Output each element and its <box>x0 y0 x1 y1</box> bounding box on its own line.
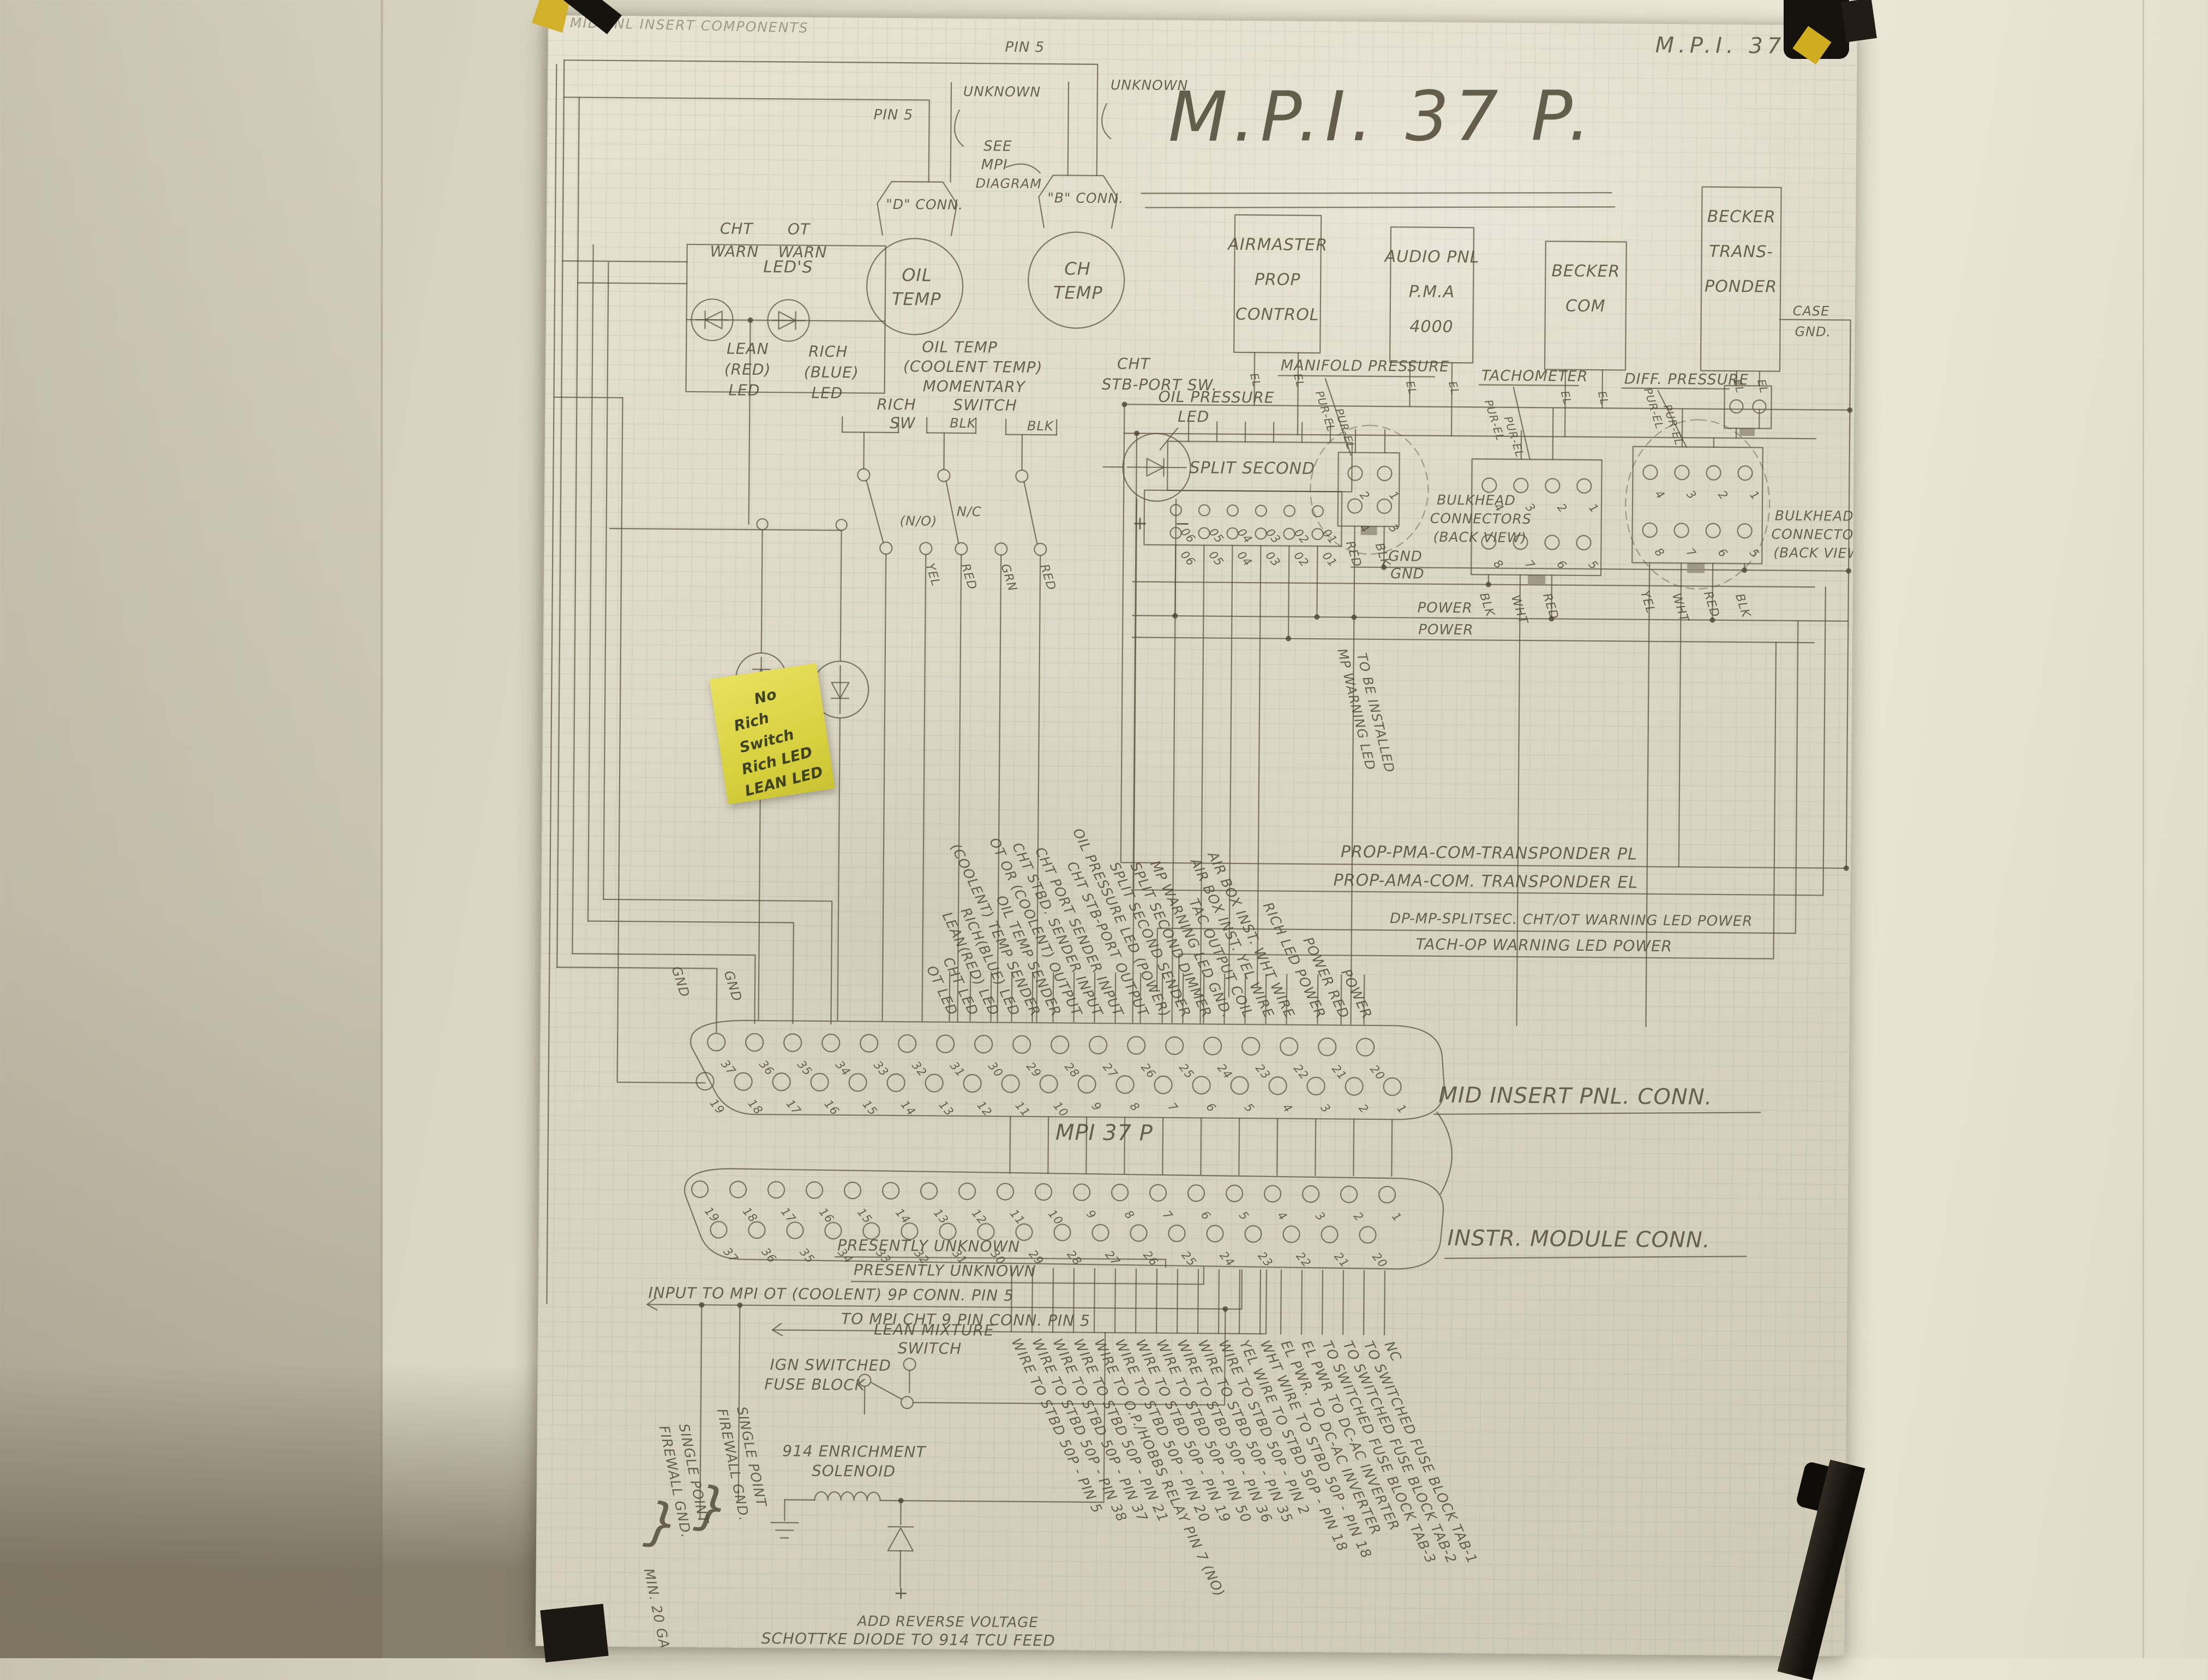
wire <box>554 397 623 398</box>
pin-number: 4 <box>1652 488 1667 502</box>
pin-number: 2 <box>1555 501 1570 515</box>
connector-pin <box>1321 1226 1337 1243</box>
becker-transponder-box-label: BECKER <box>1707 207 1776 227</box>
connector-pin <box>1078 1076 1096 1093</box>
bulkhead-connector-c <box>1632 447 1763 564</box>
connector-pin <box>1643 465 1657 479</box>
wire <box>815 1492 880 1501</box>
wire <box>1141 189 1611 197</box>
handwritten-label: INPUT TO MPI OT (COOLENT) 9P CONN. PIN 5 <box>648 1284 1014 1305</box>
handwritten-label: CHT <box>720 219 754 237</box>
sticky-note: No Rich Switch Rich LED LEAN LED <box>710 663 835 805</box>
connector-pin <box>921 1183 937 1199</box>
wire <box>1048 1117 1048 1173</box>
pin-number: 20 <box>1370 1250 1390 1270</box>
wire <box>1445 1254 1746 1261</box>
wire <box>883 554 886 1021</box>
audio-panel-box-label: AUDIO PNL <box>1384 247 1480 267</box>
connector-pin <box>849 1073 867 1091</box>
pin-number: 5 <box>1586 558 1601 572</box>
handwritten-label: RICH <box>877 395 916 414</box>
connector-pin <box>768 1181 784 1198</box>
connector-pin <box>959 1183 975 1199</box>
diode-lead <box>1127 467 1186 467</box>
connector-pin <box>887 1074 905 1091</box>
contact-circle <box>757 519 768 530</box>
junction-dot <box>1121 401 1127 407</box>
pin-number: 02 <box>1291 549 1311 569</box>
connector-pin <box>1127 1036 1145 1054</box>
easel-leg-left <box>540 1604 608 1663</box>
pin-number: 8 <box>1491 557 1506 572</box>
pin-number: 8 <box>1127 1100 1142 1114</box>
wire <box>1006 435 1057 435</box>
handwritten-label: MANIFOLD PRESSURE <box>1281 357 1449 375</box>
handwritten-label: PROP-PMA-COM-TRANSPONDER PL <box>1341 842 1637 863</box>
pin-number: 35 <box>797 1246 817 1266</box>
audio-panel-box-label: 4000 <box>1409 317 1454 337</box>
wire <box>1288 546 1289 639</box>
pin-number: 22 <box>1291 1062 1311 1082</box>
handwritten-label: OIL TEMP <box>922 338 998 356</box>
wire <box>1257 545 1261 986</box>
connector-pin <box>1280 1038 1298 1055</box>
contact-circle <box>1016 470 1028 482</box>
wire <box>617 398 711 1083</box>
connector-pin <box>1199 505 1210 515</box>
connector-pin <box>697 1072 714 1090</box>
wire <box>1136 1269 1136 1333</box>
pin-number: 26 <box>1138 1060 1159 1081</box>
wire <box>871 1383 902 1399</box>
handwritten-label: BLK <box>1027 418 1054 434</box>
junction-dot <box>1844 866 1849 871</box>
handwritten-label: OIL PRESSURE <box>1158 388 1274 407</box>
connector-pin <box>1341 1186 1357 1202</box>
pin-number: 7 <box>1165 1100 1180 1114</box>
wire <box>1145 203 1615 212</box>
connector-pin <box>1348 466 1362 481</box>
wire <box>944 433 944 470</box>
wire <box>1317 546 1317 617</box>
pin-number: 20 <box>1367 1063 1388 1083</box>
handwritten-label: DIAGRAM <box>975 176 1042 191</box>
junction-dot <box>1742 567 1747 573</box>
diode-symbol <box>888 1528 913 1551</box>
handwritten-label: EL <box>1291 372 1307 389</box>
handwritten-label: N/C <box>957 504 982 519</box>
handwritten-label: SCHOTTKE DIODE TO 914 TCU FEED <box>761 1629 1055 1649</box>
connector-pin <box>748 1222 765 1238</box>
pin-number: 36 <box>759 1245 779 1265</box>
becker-transponder-box-label: PONDER <box>1705 277 1777 297</box>
handwritten-label: MPI <box>981 157 1008 173</box>
junction-dot <box>1846 568 1851 574</box>
pin-number: 21 <box>1329 1062 1349 1082</box>
connector-pin <box>1035 1184 1052 1200</box>
connector-pin <box>1357 1039 1374 1056</box>
pin-number: 37 <box>721 1245 741 1265</box>
connector-pin <box>1188 1185 1204 1201</box>
connector-pin <box>1089 1036 1107 1054</box>
connector-pin <box>1204 1037 1221 1055</box>
junction-dot <box>1351 615 1357 620</box>
wire <box>1011 1268 1012 1332</box>
handwritten-label: GND <box>721 969 745 1004</box>
page-title: M.P.I. 37 P. <box>1114 76 1649 158</box>
connector-pin <box>1643 523 1657 537</box>
wire <box>1322 1270 1323 1334</box>
wire <box>1010 1117 1010 1173</box>
wall-corner-line-right <box>2143 0 2144 1658</box>
connector-pin <box>1242 1037 1259 1055</box>
pin-number: 5 <box>1241 1101 1257 1115</box>
wire <box>1239 1270 1240 1334</box>
contact-circle <box>920 542 932 554</box>
connector-pin <box>1738 524 1752 538</box>
contact-circle <box>836 519 847 530</box>
connector-pin <box>997 1184 1013 1200</box>
connector-pin <box>1675 523 1689 537</box>
wire <box>1301 1270 1302 1334</box>
handwritten-label: DP-MP-SPLITSEC. CHT/OT WARNING LED POWER <box>1390 910 1753 929</box>
handwritten-label: TACHOMETER <box>1481 367 1588 385</box>
pin-number: 3 <box>1684 488 1699 502</box>
pin-number: 33 <box>871 1059 891 1079</box>
handwritten-label: LEAN MIXTURE <box>874 1321 994 1340</box>
airmaster-prop-control-box-label: PROP <box>1255 270 1301 290</box>
connector-pin <box>1245 1226 1261 1242</box>
connector-pin <box>1166 1037 1183 1054</box>
wire <box>1517 575 1520 1025</box>
pin-number: 2 <box>1715 488 1731 502</box>
connector-pin <box>707 1033 725 1051</box>
handwritten-label: EL <box>1595 389 1612 406</box>
connector-pin <box>1345 1078 1363 1095</box>
pin-number: 05 <box>1206 548 1226 568</box>
connector-pin <box>1379 1186 1395 1203</box>
connector-tab <box>1687 563 1705 573</box>
connector-pin <box>1155 1076 1172 1094</box>
handwritten-label: EL <box>1755 378 1771 395</box>
wire <box>588 245 593 921</box>
wire <box>1177 1269 1178 1333</box>
handwritten-label: POWER <box>1417 600 1473 617</box>
connector-pin <box>1284 506 1295 517</box>
pin-number: 31 <box>947 1059 968 1079</box>
pin-number: 06 <box>1178 548 1198 568</box>
wire <box>1260 1270 1261 1334</box>
contact-circle <box>995 543 1007 555</box>
wire <box>866 481 884 543</box>
pin-number: 25 <box>1177 1061 1197 1081</box>
connector-pin <box>1738 466 1752 480</box>
connector-pin <box>898 1035 916 1052</box>
wire <box>761 530 763 653</box>
connector-pin <box>1514 478 1528 493</box>
junction-dot <box>1222 1306 1228 1312</box>
handwritten-label: YEL <box>1637 589 1658 615</box>
handwritten-label: (BACK VIEW) <box>1773 545 1857 561</box>
pin-number: 03 <box>1263 549 1283 569</box>
pin-number: 9 <box>1084 1208 1099 1222</box>
handwritten-label: PRESENTLY UNKNOWN <box>854 1261 1036 1280</box>
wire <box>1201 1118 1201 1174</box>
wall-shadow-bottom-left <box>0 1364 556 1658</box>
wire <box>1451 363 1452 436</box>
connector-pin <box>1545 478 1559 493</box>
handwritten-label: WHT <box>1508 593 1531 626</box>
handwritten-label: GND <box>669 964 693 999</box>
wire <box>1281 1270 1281 1334</box>
connector-pin <box>1193 1076 1210 1094</box>
junction-dot <box>1847 407 1852 413</box>
pin-number: 23 <box>1253 1061 1273 1082</box>
handwritten-label: GND. <box>1795 324 1831 340</box>
connector-pin <box>1256 505 1267 516</box>
pin-number: 6 <box>1715 546 1730 560</box>
diode-lead <box>840 665 841 713</box>
handwritten-label: BLK <box>1477 591 1497 619</box>
pin-number: 9 <box>1089 1100 1104 1114</box>
wire <box>1156 1269 1157 1333</box>
wire <box>1073 1269 1074 1333</box>
connector-pin <box>860 1035 878 1052</box>
handwritten-label: (BLUE) <box>804 363 859 382</box>
pin-number: 1 <box>1586 501 1601 515</box>
junction-dot <box>1134 430 1139 436</box>
handwritten-label: (RED) <box>724 361 771 379</box>
junction-dot <box>1314 614 1319 620</box>
wire <box>1068 82 1069 175</box>
connector-pin <box>1207 1226 1223 1242</box>
handwritten-label: DIFF. PRESSURE <box>1624 371 1749 389</box>
pin-number: 1 <box>1747 488 1762 502</box>
wire <box>562 261 687 262</box>
handwritten-label: GND <box>1390 566 1425 582</box>
handwritten-label: "B" CONN. <box>1047 190 1124 206</box>
handwritten-label: + <box>893 1582 909 1603</box>
pin-number: 6 <box>1198 1208 1214 1222</box>
handwritten-label: "D" CONN. <box>886 196 963 213</box>
connector-pin <box>1706 466 1720 480</box>
connector-pin <box>1112 1184 1128 1201</box>
connector-pin <box>1040 1075 1058 1093</box>
handwritten-label: IGN SWITCHED <box>770 1355 891 1375</box>
handwritten-label: CH <box>1064 258 1091 279</box>
wire <box>1351 526 1355 1024</box>
connector-pin <box>822 1034 839 1052</box>
handwritten-label: (N/O) <box>900 513 938 529</box>
pin-number: 3 <box>1313 1209 1328 1223</box>
wire <box>1102 104 1111 139</box>
handwritten-label: EL <box>1446 380 1462 397</box>
connector-pin <box>746 1034 763 1051</box>
connector-pin <box>1150 1185 1166 1201</box>
photo-of-schematic-on-wall: { "scene": { "wall_light": "#e9e4d3", "w… <box>0 0 2208 1658</box>
connector-pin <box>811 1073 829 1091</box>
wire <box>610 529 842 530</box>
wire <box>842 432 898 433</box>
becker-com-box-label: COM <box>1565 297 1606 316</box>
pin-number: 6 <box>1554 557 1569 572</box>
pin-number: 36 <box>757 1058 777 1078</box>
contact-circle <box>938 470 950 482</box>
connector-pin <box>1307 1077 1325 1095</box>
handwritten-label: EL <box>1403 380 1420 397</box>
connector-pin <box>975 1035 992 1053</box>
handwritten-label: TEMP <box>892 289 941 310</box>
connector-pin <box>1675 465 1689 479</box>
wire <box>1162 1118 1163 1174</box>
junction-dot <box>898 1498 904 1503</box>
junction-dot <box>699 1302 704 1307</box>
handwritten-label: SOLENOID <box>812 1462 896 1480</box>
handwritten-label: WARN <box>710 242 759 261</box>
connector-pin <box>1303 1186 1319 1202</box>
connector-pin <box>1359 1227 1376 1243</box>
clamp-arm-icon <box>1841 0 1877 43</box>
handwritten-label: EL <box>1247 371 1264 388</box>
wire <box>547 64 556 1304</box>
handwritten-label: PIN 5 <box>1005 39 1045 56</box>
wire <box>1022 435 1022 470</box>
schematic-drawing: AIRMASTERPROPCONTROLAUDIO PNLP.M.A4000BE… <box>536 15 1857 1657</box>
pin-number: 5 <box>1237 1209 1252 1223</box>
wire <box>1023 482 1037 544</box>
handwritten-label: OIL <box>902 265 932 285</box>
handwritten-label: SWITCH <box>953 396 1017 415</box>
connector-pin <box>1283 1226 1299 1243</box>
handwritten-label: CHT <box>1117 355 1151 373</box>
handwritten-label: BULKHEAD <box>1775 508 1854 524</box>
wire <box>1343 1271 1343 1335</box>
connector-pin <box>1377 466 1391 481</box>
connector-pin <box>1226 1185 1243 1202</box>
pin-number: 8 <box>1122 1208 1137 1222</box>
airmaster-prop-control-box-label: CONTROL <box>1235 305 1319 325</box>
handwritten-label: SEE <box>983 138 1012 154</box>
pin-number: 04 <box>1234 549 1255 569</box>
wire <box>556 967 717 1032</box>
connector-pin <box>1092 1225 1108 1241</box>
pin-number: 7 <box>1160 1208 1175 1222</box>
pin-number: 2 <box>1356 1102 1371 1116</box>
wire <box>1053 1268 1053 1332</box>
wire <box>572 97 579 953</box>
pin-number: 34 <box>833 1058 853 1078</box>
pin-number: 7 <box>1683 545 1699 560</box>
wire <box>578 283 687 284</box>
handwritten-label: PIN 5 <box>873 107 913 124</box>
contact-circle <box>904 1358 916 1370</box>
connector-tab <box>1528 575 1545 585</box>
handwritten-label: + <box>1132 512 1149 534</box>
wire <box>863 433 864 469</box>
junction-dot <box>748 317 753 323</box>
connector-pin <box>1130 1225 1147 1241</box>
handwritten-label: OT <box>788 220 811 238</box>
connector-pin <box>710 1221 727 1238</box>
contact-circle <box>1034 543 1046 555</box>
junction-dot <box>1286 636 1291 641</box>
handwritten-label: SWITCH <box>898 1339 962 1358</box>
connector-pin <box>1348 499 1362 513</box>
wire <box>1219 1270 1219 1334</box>
wire <box>1198 1269 1198 1333</box>
connector-pin <box>1577 479 1591 493</box>
connector-pin <box>1318 1038 1336 1055</box>
handwritten-label: GND <box>1388 548 1423 565</box>
pin-number: 2 <box>1351 1210 1366 1224</box>
contact-circle <box>866 238 963 335</box>
wire <box>922 554 926 1021</box>
pin-number: 30 <box>986 1059 1006 1079</box>
pin-number: 8 <box>1652 545 1667 560</box>
handwritten-label: MPI 37 P <box>1055 1120 1153 1145</box>
handwritten-label: RICH <box>808 343 848 361</box>
connector-pin <box>1706 524 1720 538</box>
contact-circle <box>955 543 967 555</box>
connector-pin <box>926 1074 943 1091</box>
connector-pin <box>1269 1077 1287 1094</box>
audio-panel-box-label: P.M.A <box>1409 282 1455 302</box>
handwritten-label: INSTR. MODULE CONN. <box>1447 1226 1710 1253</box>
connector-pin <box>806 1182 823 1198</box>
airmaster-prop-control-box-label: AIRMASTER <box>1227 235 1328 255</box>
pin-number: 1 <box>1394 1102 1409 1116</box>
connector-pin <box>730 1181 746 1198</box>
schematic-paper-sheet: AIRMASTERPROPCONTROLAUDIO PNLP.M.A4000BE… <box>536 15 1857 1657</box>
pin-number: 37 <box>718 1057 739 1077</box>
pin-number: 27 <box>1100 1060 1120 1081</box>
handwritten-label: PROP-AMA-COM. TRANSPONDER EL <box>1333 871 1638 892</box>
wire <box>841 530 842 661</box>
contact-circle <box>901 1396 913 1408</box>
pin-number: 24 <box>1215 1061 1235 1082</box>
wire <box>927 433 976 433</box>
connector-pin <box>773 1073 790 1090</box>
wire <box>1124 433 1816 439</box>
pin-number: 32 <box>909 1059 929 1079</box>
wire <box>1115 1269 1115 1333</box>
contact-circle <box>1730 400 1743 413</box>
handwritten-label: MID INSERT PNL. CONN. <box>1438 1083 1712 1110</box>
wire <box>1094 1269 1095 1333</box>
wire <box>1239 1118 1239 1175</box>
handwritten-label: RED <box>1343 539 1364 569</box>
handwritten-label: MIN. 20 GA. <box>641 1567 674 1655</box>
pin-number: 4 <box>1280 1101 1295 1115</box>
wire <box>1434 1110 1760 1117</box>
pin-number: 19 <box>707 1096 727 1117</box>
wire <box>603 262 608 899</box>
pin-number: 35 <box>795 1058 815 1078</box>
connector-pin <box>787 1222 803 1239</box>
handwritten-label: PRESENTLY UNKNOWN <box>837 1236 1020 1256</box>
wire <box>1391 1119 1392 1176</box>
connector-pin <box>1227 505 1238 516</box>
handwritten-label: 914 ENRICHMENT <box>782 1442 926 1461</box>
handwritten-label: EL <box>1731 377 1747 394</box>
handwritten-label: LEAN <box>727 340 769 358</box>
wire <box>1646 563 1650 1027</box>
connector-pin <box>1054 1224 1070 1240</box>
connector-pin <box>1264 1185 1281 1202</box>
pin-number: 28 <box>1064 1247 1084 1268</box>
handwritten-label: RED <box>1701 590 1722 619</box>
pin-number: 7 <box>1522 557 1538 572</box>
